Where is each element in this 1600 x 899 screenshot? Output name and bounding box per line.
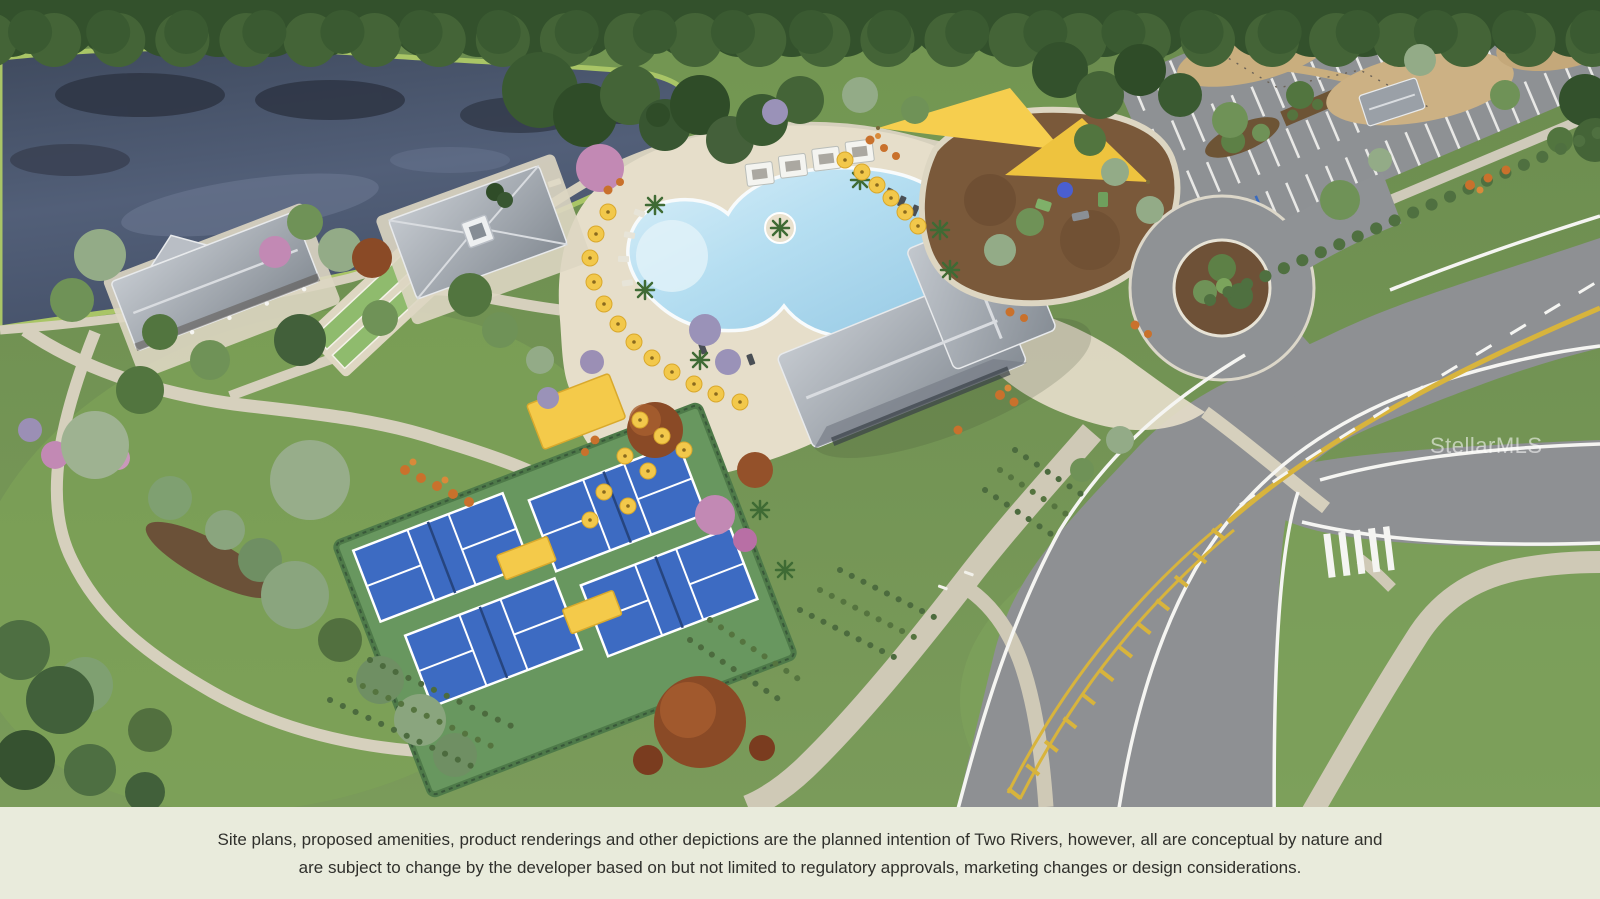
lake-sky-reflection-2	[390, 147, 510, 173]
palm	[941, 261, 959, 279]
palm	[931, 221, 949, 239]
palm	[646, 196, 664, 214]
palm	[636, 281, 654, 299]
purple-tree	[762, 99, 788, 125]
pink-flowering-tree	[695, 495, 735, 535]
site-rendering	[0, 0, 1600, 807]
beach-entry	[636, 220, 708, 292]
listing-photo-aerial-rendering: StellarMLS Site plans, proposed amenitie…	[0, 0, 1600, 899]
copper-tree	[352, 238, 392, 278]
palm	[751, 501, 769, 519]
forest-band	[0, 6, 1600, 40]
disclaimer-caption: Site plans, proposed amenities, product …	[0, 807, 1600, 899]
pink-flowering-tree	[259, 236, 291, 268]
disclaimer-line-2: are subject to change by the developer b…	[299, 855, 1302, 880]
purple-tree	[689, 314, 721, 346]
palm	[691, 351, 709, 369]
blue-umbrella	[1057, 182, 1073, 198]
palm	[771, 219, 789, 237]
disclaimer-line-1: Site plans, proposed amenities, product …	[218, 827, 1383, 852]
palm	[776, 561, 794, 579]
pink-flowering-tree	[576, 144, 624, 192]
copper-tree	[737, 452, 773, 488]
